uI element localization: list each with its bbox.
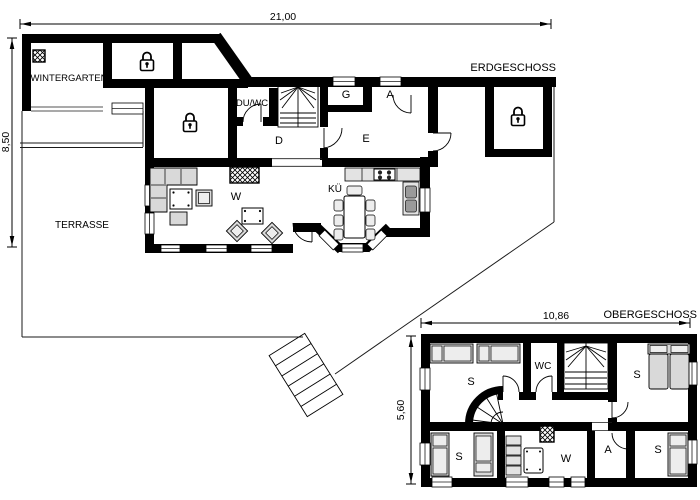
ground-width-dimension: 21,00 — [270, 11, 296, 23]
room-label-kue: KÜ — [328, 183, 342, 195]
room-label-d: D — [275, 135, 283, 147]
single-bed — [477, 344, 520, 363]
single-bed — [431, 433, 449, 476]
chimney-icon — [540, 426, 554, 442]
table — [524, 448, 543, 473]
room-label-du-wc: DU/WC — [236, 98, 268, 109]
single-bed — [474, 433, 493, 476]
room-label-wc: WC — [535, 361, 552, 372]
room-label-w: W — [231, 191, 242, 203]
room-label-a-upper: A — [604, 444, 612, 456]
side-table — [242, 208, 263, 224]
coffee-table — [170, 189, 192, 209]
room-label-e: E — [362, 133, 369, 145]
floor-plan-page: 21,00 8,50 — [0, 0, 700, 500]
staircase-outdoor-icon — [269, 333, 343, 416]
room-label-wintergarten: WINTERGARTEN — [31, 73, 108, 84]
room-label-terrasse: TERRASSE — [55, 220, 109, 231]
room-label-s-ne: S — [633, 369, 640, 381]
padlock-icon — [141, 53, 154, 71]
armchair — [261, 222, 282, 243]
armchair — [196, 190, 212, 206]
single-bed — [668, 433, 688, 476]
room-label-s-se: S — [654, 444, 661, 456]
upper-floor-title: OBERGESCHOSS — [603, 309, 697, 321]
chimney-icon — [230, 167, 259, 183]
room-label-s-sw: S — [455, 451, 462, 463]
ground-floor-dimensions: 21,00 8,50 — [0, 11, 551, 247]
floor-plan-drawing: 21,00 8,50 — [0, 0, 700, 500]
room-label-a: A — [386, 89, 394, 101]
upper-floor: 10,86 5,60 — [395, 309, 697, 487]
room-label-g: G — [342, 89, 351, 101]
ground-floor-title: ERDGESCHOSS — [470, 62, 556, 74]
padlock-icon — [184, 114, 197, 132]
upper-width-dimension: 10,86 — [543, 310, 569, 322]
staircase-main-icon — [278, 84, 318, 127]
upper-height-dimension: 5,60 — [395, 400, 407, 421]
single-bed — [430, 344, 473, 363]
stove-icon — [374, 169, 395, 180]
room-label-s-nw: S — [467, 376, 474, 388]
sink-icon — [403, 182, 419, 215]
ottoman — [170, 212, 187, 225]
room-label-w-upper: W — [561, 453, 572, 465]
ground-height-dimension: 8,50 — [0, 132, 12, 153]
chimney-icon — [33, 50, 45, 62]
